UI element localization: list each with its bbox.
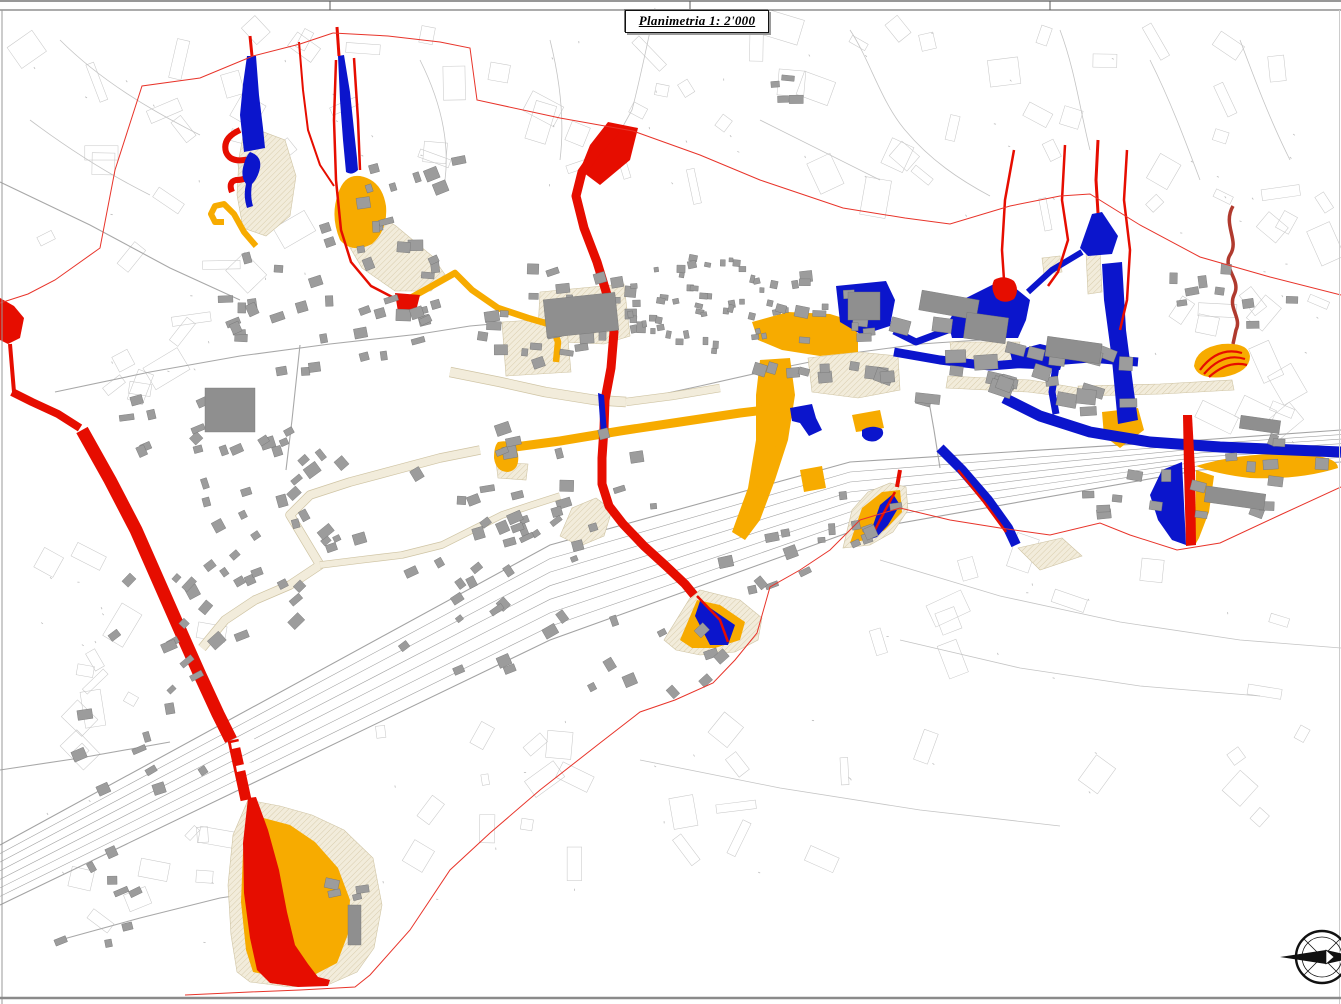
terrain-line [1060,30,1090,150]
building [627,311,633,318]
compass-rose-icon [1280,931,1341,983]
building [301,367,310,375]
building [642,320,647,327]
parcel-line [1146,194,1164,212]
building [1149,501,1163,511]
parcel-line [715,114,733,132]
parcel-mark [730,135,732,137]
parcel-line [1268,363,1308,405]
low-danger-zone [800,466,826,492]
building [289,593,303,606]
parcel-line [71,542,106,570]
parcel-mark [723,78,724,80]
building [690,285,698,291]
building [1120,399,1137,408]
parcel-mark [394,785,395,787]
building [353,327,367,339]
parcel-mark [47,813,49,815]
parcel-mark [194,368,196,370]
building [587,682,597,692]
building [502,564,514,577]
building [613,485,626,494]
building [963,312,1008,344]
parcel-mark [1180,233,1182,234]
parcel-line [375,725,385,738]
parcel-mark [1088,599,1090,601]
building [229,550,240,561]
building [332,534,341,542]
building [122,922,134,932]
parcel-mark [167,371,169,373]
building [450,592,464,605]
parcel-mark [420,155,422,156]
medium-danger-zone [1080,212,1118,256]
parcel-line [288,32,321,62]
building [760,288,765,293]
building [191,423,206,434]
building [1239,415,1280,433]
building [530,343,542,351]
building [1082,491,1094,498]
parcel-line [1039,198,1052,231]
parcel-line [919,32,937,51]
parcel-mark [436,899,438,900]
building [397,241,411,252]
parcel-mark [1263,271,1265,272]
map-canvas [0,0,1341,1004]
terrain-line [30,120,150,195]
parcel-mark [34,67,36,69]
parcel-line [1059,106,1083,130]
building [287,486,302,501]
parcel-line [1315,192,1334,213]
building [368,163,379,174]
building [755,328,761,334]
building [945,350,966,364]
parcel-line [849,35,868,50]
parcel-line [423,141,448,164]
building [777,96,788,103]
building [839,491,847,500]
parcel-line [524,761,564,798]
building [770,280,778,289]
parcel-mark [664,821,665,823]
high-danger-band [299,42,334,186]
building [107,876,117,884]
medium-danger-band [1052,366,1056,414]
parcel-line [1195,400,1239,434]
parcel-line [171,115,196,142]
parcel-mark [574,889,575,891]
building [245,302,259,317]
parcel-line [1308,294,1330,309]
building [160,639,177,653]
building [357,246,365,254]
parcel-mark [199,180,200,182]
medium-danger-zone [790,404,822,436]
parcel-mark [686,140,688,142]
building [1177,299,1188,306]
parcel-line [76,664,94,678]
parcel-line [1249,340,1284,383]
parcel-line [346,42,381,54]
parcel-line [1195,314,1219,336]
parcel-mark [1239,220,1241,222]
parcel-line [80,689,106,728]
building [1097,505,1110,512]
building [761,333,767,339]
parcel-mark [190,295,192,296]
high-danger-zone [0,298,24,344]
building [480,485,495,493]
parcel-line [1214,82,1237,117]
parcel-mark [85,96,87,98]
building [205,388,255,432]
parcel-line [138,858,170,881]
terrain-line [880,560,1341,648]
building [677,265,685,273]
parcel-line [804,846,839,873]
parcel-mark [654,765,656,767]
high-danger-band [897,470,900,487]
parcel-mark [1252,198,1254,200]
terrain-line [900,640,1260,696]
building [119,414,134,422]
building [657,628,667,637]
building [889,317,911,336]
parcel-line [1307,222,1341,266]
parcel-mark [1052,677,1054,678]
parcel-mark [1290,157,1292,159]
building [609,615,618,627]
perimeter-line [333,33,1341,295]
building [105,845,118,858]
building [630,283,637,288]
parcel-line [196,870,213,883]
building [152,782,167,796]
building [683,330,689,339]
building [765,532,780,543]
building [771,81,780,88]
parcel-mark [1032,583,1033,585]
building [324,236,336,247]
parcel-line [1294,725,1310,742]
parcel-line [1036,25,1052,46]
parcel-line [1051,589,1087,612]
parcel-mark [865,55,867,57]
building [457,496,466,505]
parcel-mark [101,607,103,609]
building [242,252,252,264]
building [423,166,440,182]
parcel-mark [62,872,64,874]
parcel-mark [549,184,550,186]
building [1273,439,1285,447]
building [818,537,826,543]
building [974,354,998,370]
building [202,497,211,507]
building [949,365,963,376]
building [146,409,156,420]
high-danger-band [337,27,339,56]
parcel-line [716,800,757,813]
building [560,480,574,492]
building [511,490,524,500]
parcel-line [1093,54,1117,68]
parcel-mark [965,214,967,216]
parcel-mark [1293,134,1295,136]
building [404,566,419,579]
building [650,503,657,509]
building [718,555,734,569]
building [1204,486,1266,510]
building [398,640,410,651]
building [1127,469,1143,481]
building [279,438,289,447]
parcel-line [937,639,968,679]
building [699,674,713,688]
building [240,487,252,497]
building [828,523,835,535]
parcel-mark [1217,176,1219,178]
building [751,334,759,340]
building [852,323,858,331]
building [622,672,638,687]
building [633,300,641,307]
building [543,292,619,337]
parcel-line [112,349,135,372]
parcel-line [749,31,763,62]
building [317,523,334,540]
terrain-line [850,30,990,196]
parcel-mark [383,881,384,883]
building [695,303,703,309]
building [372,221,379,232]
building [276,366,288,376]
building [172,573,181,583]
parcel-mark [102,613,104,615]
building [1112,495,1122,503]
parcel-line [443,66,466,100]
building [219,567,229,577]
building [288,612,305,629]
parcel-mark [110,214,112,215]
building [556,283,570,294]
parcel-line [169,317,195,346]
building [494,421,511,436]
parcel-mark [153,104,155,106]
low-danger-zone [732,358,795,540]
building [303,461,321,479]
plan-title: Planimetria 1: 2'000 [639,13,756,28]
building [291,474,303,485]
building [657,324,665,331]
building [165,703,176,715]
building [334,455,349,470]
building [356,197,371,210]
building [500,310,508,317]
building [432,180,449,196]
building [822,304,828,310]
building [1246,321,1259,328]
parcel-line [241,16,270,45]
parcel-line [103,603,142,647]
building [325,296,333,307]
parcel-mark [50,577,52,579]
building [413,172,422,183]
building [1286,296,1298,303]
building [113,886,129,897]
parcel-line [881,138,914,173]
building [820,364,830,373]
building [556,610,569,624]
road-line [286,345,300,470]
residual-zone [1086,250,1102,294]
parcel-line [1261,185,1300,201]
parcel-line [523,91,564,127]
building [453,665,465,676]
parcel-mark [126,80,128,82]
building [142,731,151,742]
torrent-line [1228,206,1237,344]
building [380,351,388,361]
building [739,299,744,304]
parcel-line [221,70,245,98]
parcel-line [708,712,743,748]
parcel-line [1256,212,1288,243]
building [610,276,623,288]
building [503,537,517,547]
building [1119,357,1133,371]
parcel-line [935,607,962,636]
parcel-mark [812,720,814,721]
parcel-mark [886,636,888,637]
building [791,280,798,289]
parcel-line [1247,684,1282,699]
parcel-mark [1008,146,1010,147]
building [276,494,289,508]
building [1076,388,1097,405]
parcel-line [1227,747,1246,766]
parcel-line [556,762,595,792]
building [77,709,93,721]
parcel-mark [1224,196,1226,198]
residual-zone [1018,538,1082,570]
parcel-mark [1305,352,1307,354]
building [238,510,247,520]
parcel-mark [997,653,999,655]
building [794,305,810,318]
building [665,331,671,339]
building [1080,406,1097,416]
parcel-mark [671,182,673,184]
parcel-mark [285,60,286,62]
building [295,300,308,313]
terrain-line [1240,40,1290,160]
parcel-line [654,83,669,97]
building [96,782,111,796]
building [489,603,504,616]
building [851,520,861,530]
parcel-line [840,757,849,785]
building [789,95,803,103]
parcel-mark [850,778,852,780]
building [739,266,746,271]
parcel-line [481,774,490,786]
building [234,630,249,642]
parcel-mark [737,151,739,153]
building [654,267,659,272]
building [521,348,528,356]
parcel-line [520,818,533,831]
parcel-mark [89,800,91,802]
building [546,267,560,277]
building [348,905,361,945]
building [555,448,564,459]
parcel-mark [304,273,305,275]
building [529,293,539,299]
building [527,264,539,275]
parcel-mark [1053,198,1055,200]
building [200,478,209,490]
building [599,331,606,340]
building [1315,458,1329,470]
parcel-mark [82,644,84,646]
parcel-line [567,847,582,881]
building [630,451,645,464]
parcel-line [860,177,892,219]
parcel-line [523,733,547,756]
building [932,317,953,334]
building [1198,275,1208,288]
building [145,765,158,776]
building [250,531,260,541]
building [1215,287,1225,296]
parcel-mark [693,754,695,756]
building [104,939,112,948]
parcel-line [1212,129,1229,144]
parcel-line [92,153,115,175]
parcel-line [632,36,667,71]
medium-danger-zone [862,427,883,442]
building [1170,273,1178,284]
building [477,331,488,341]
parcel-line [34,547,64,577]
building [1161,470,1170,482]
building [203,559,216,572]
building [358,305,370,315]
building [729,258,733,262]
parcel-mark [1281,295,1283,297]
parcel-line [777,69,806,97]
parcel-line [1275,211,1297,235]
parcel-line [402,840,434,873]
parcel-mark [1089,791,1091,793]
parcel-mark [1026,592,1028,593]
parcel-mark [111,361,113,363]
parcel-line [479,814,495,842]
parcel-mark [371,135,373,137]
building [455,578,467,590]
building [655,317,662,325]
high-danger-band [12,392,80,428]
parcel-line [82,669,108,694]
building [679,272,685,278]
parcel-line [1023,102,1053,128]
building [799,567,812,577]
building [1195,511,1208,519]
building [1185,286,1199,296]
